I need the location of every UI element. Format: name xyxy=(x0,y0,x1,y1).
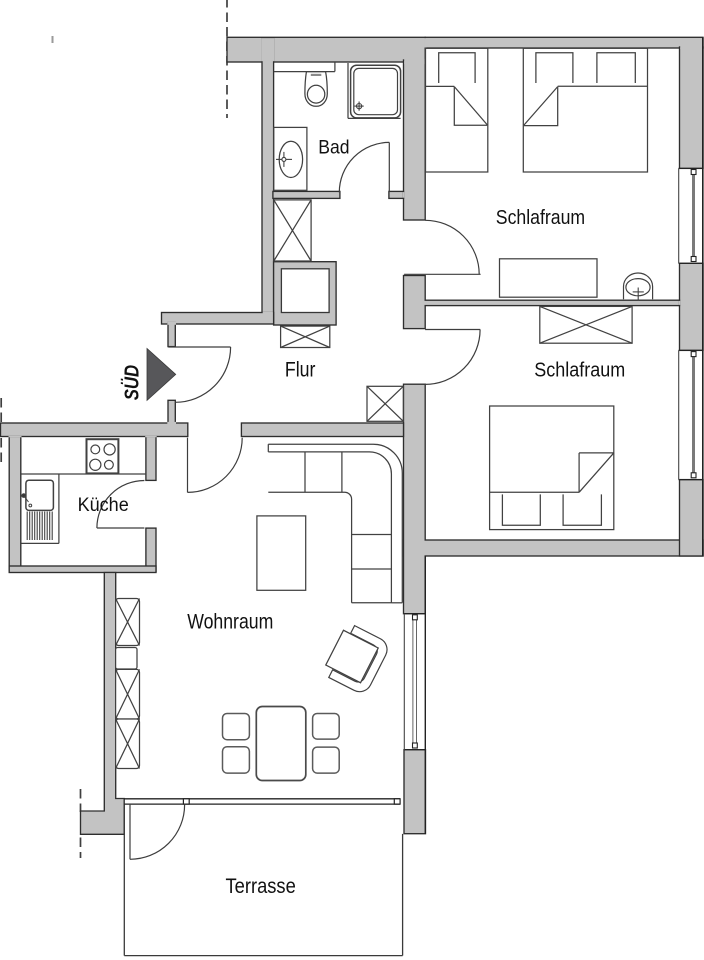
svg-text:Küche: Küche xyxy=(78,493,129,515)
svg-text:Flur: Flur xyxy=(285,358,316,382)
svg-text:Schlafraum: Schlafraum xyxy=(496,207,585,229)
svg-text:SÜD: SÜD xyxy=(120,365,143,400)
svg-text:Schlafraum: Schlafraum xyxy=(534,360,625,382)
svg-text:Wohnraum: Wohnraum xyxy=(187,610,273,634)
svg-text:Bad: Bad xyxy=(318,135,349,157)
svg-text:Terrasse: Terrasse xyxy=(226,875,296,899)
